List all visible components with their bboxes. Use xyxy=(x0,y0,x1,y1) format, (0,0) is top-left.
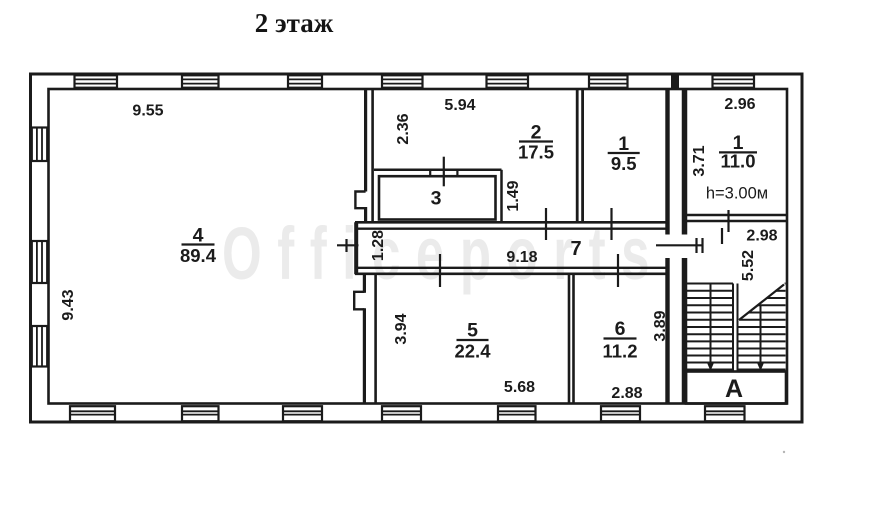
svg-text:2.88: 2.88 xyxy=(611,385,642,402)
svg-text:9.55: 9.55 xyxy=(132,103,163,120)
svg-text:6: 6 xyxy=(615,318,626,340)
svg-text:9.43: 9.43 xyxy=(60,289,77,320)
svg-text:Officeports: Officeports xyxy=(222,213,665,296)
svg-text:5.52: 5.52 xyxy=(740,250,757,281)
svg-text:5.68: 5.68 xyxy=(504,379,535,396)
svg-text:9.5: 9.5 xyxy=(611,153,637,174)
svg-text:5: 5 xyxy=(467,320,478,342)
svg-text:5.94: 5.94 xyxy=(444,97,475,114)
svg-text:3.71: 3.71 xyxy=(691,145,708,176)
svg-text:2: 2 xyxy=(531,122,542,144)
svg-text:3.89: 3.89 xyxy=(652,310,669,341)
svg-text:2.98: 2.98 xyxy=(746,228,777,245)
svg-text:4: 4 xyxy=(193,225,204,247)
svg-text:3.94: 3.94 xyxy=(393,313,410,344)
svg-text:22.4: 22.4 xyxy=(454,341,491,362)
svg-text:1.49: 1.49 xyxy=(505,180,522,211)
svg-text:7: 7 xyxy=(570,238,581,260)
svg-text:89.4: 89.4 xyxy=(180,245,217,266)
svg-text:11.2: 11.2 xyxy=(603,341,638,362)
svg-text:17.5: 17.5 xyxy=(518,142,554,163)
svg-text:11.0: 11.0 xyxy=(721,151,756,172)
svg-text:2.96: 2.96 xyxy=(724,96,755,113)
svg-text:2.36: 2.36 xyxy=(395,113,412,144)
svg-text:9.18: 9.18 xyxy=(506,249,537,266)
svg-text:3: 3 xyxy=(431,188,442,210)
svg-text:2 этаж: 2 этаж xyxy=(255,8,334,38)
svg-text:А: А xyxy=(725,375,743,403)
svg-text:1.28: 1.28 xyxy=(370,230,387,261)
svg-text:1: 1 xyxy=(618,133,629,155)
svg-text:h=3.00м: h=3.00м xyxy=(706,185,768,203)
